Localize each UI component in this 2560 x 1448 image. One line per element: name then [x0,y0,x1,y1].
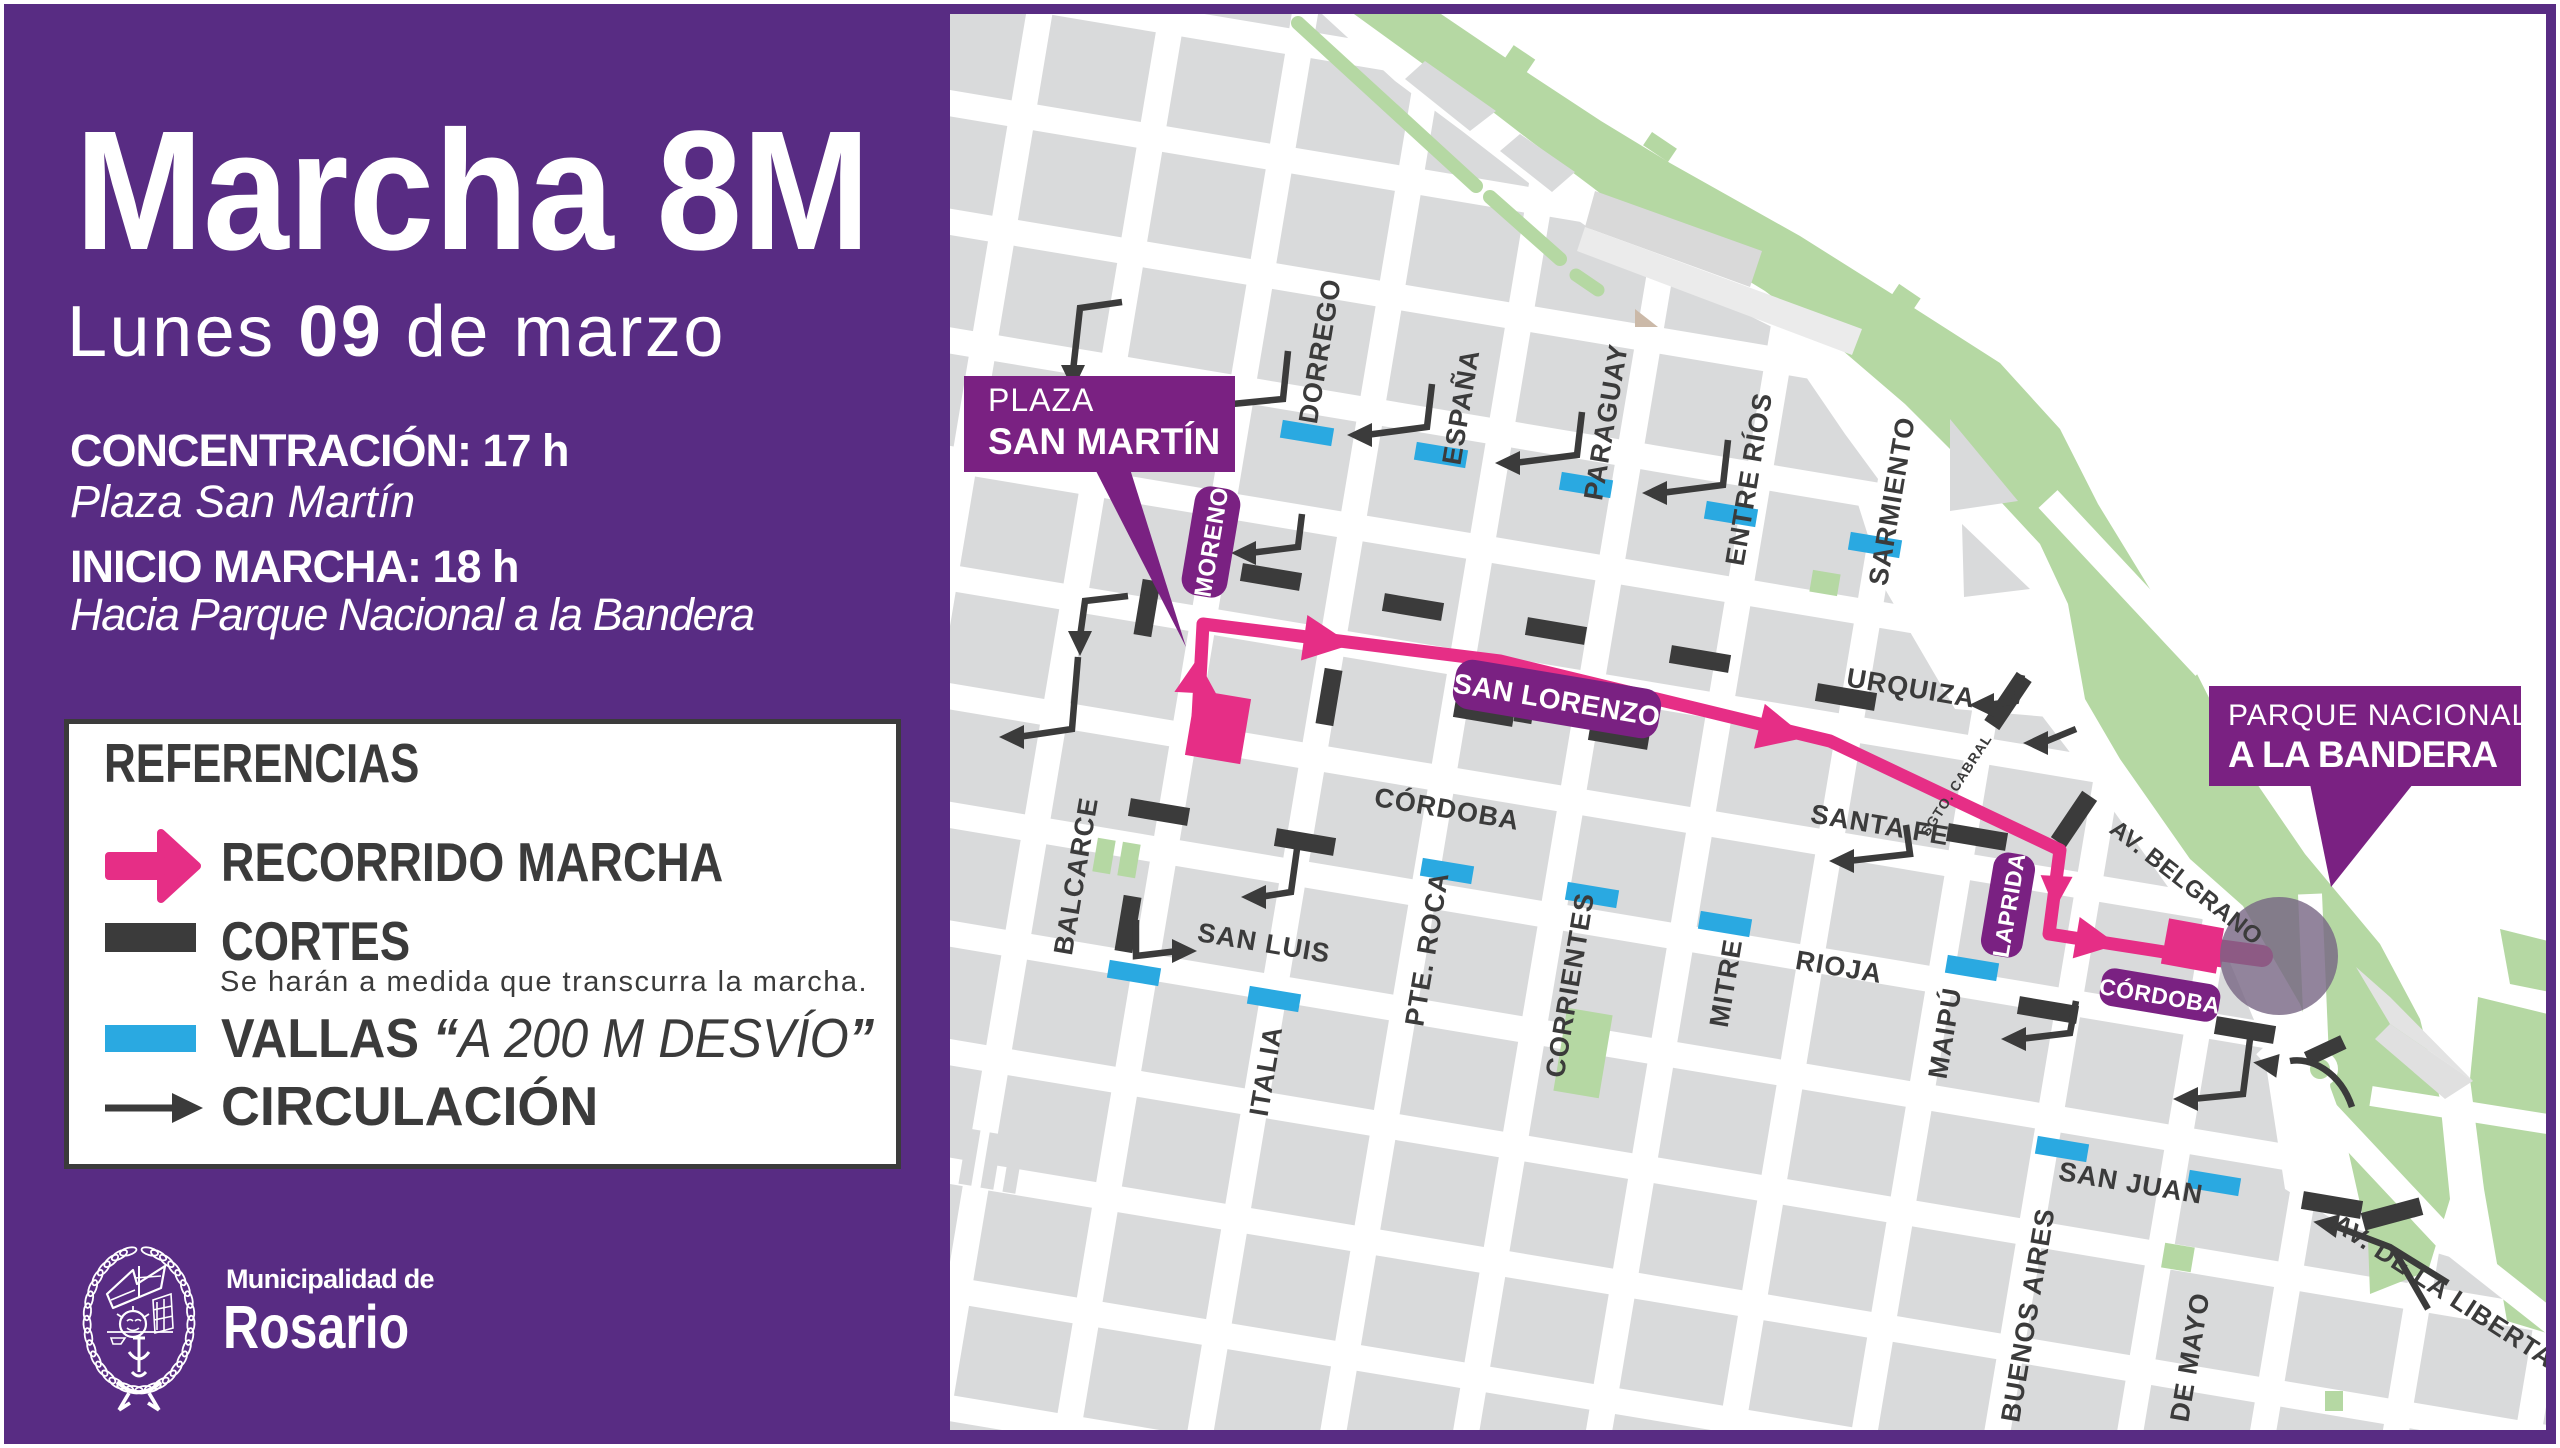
svg-text:A LA BANDERA: A LA BANDERA [2228,734,2497,775]
svg-text:PARQUE NACIONAL: PARQUE NACIONAL [2228,699,2529,732]
svg-text:PLAZA: PLAZA [988,382,1094,418]
svg-text:SAN MARTÍN: SAN MARTÍN [988,421,1220,462]
